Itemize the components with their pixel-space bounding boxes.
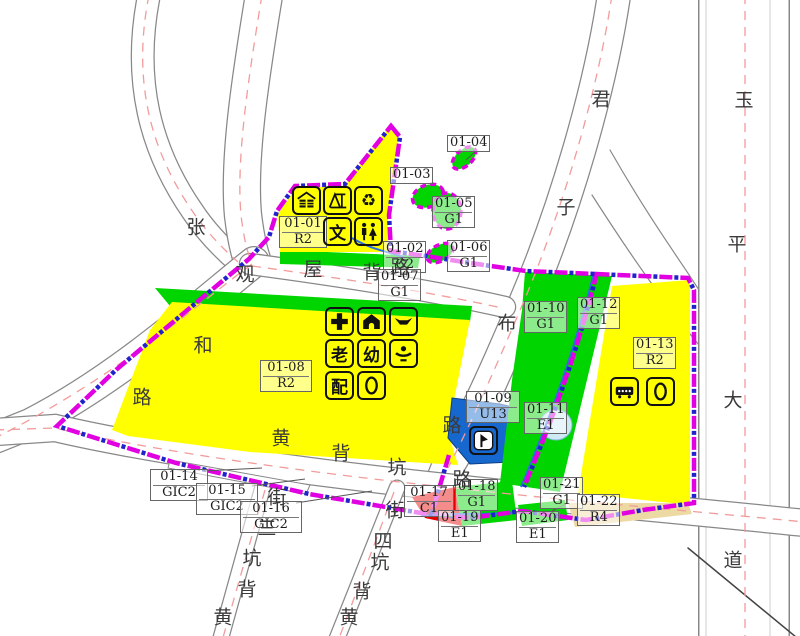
postal-icon [646,377,675,406]
parcel-code: 01-04 [450,136,487,151]
road-name-char-wu-bei-road: 屋 [303,255,322,282]
road-name-char-huang-bei-keng-3rd-street: 三 [257,514,276,541]
parcel-use-code: E1 [519,527,556,543]
road-name-char-huang-bei-keng-3rd-street: 街 [267,483,286,510]
road-name-char-huang-bei-keng-3rd-street: 坑 [242,544,261,571]
road-name-char-yu-ping-avenue: 平 [727,230,746,257]
road-name-char-wu-bei-road: 背 [362,258,381,285]
parcel-label-01-13: 01-13R2 [633,337,676,369]
substation-icon [469,426,498,455]
parcel-code: 01-13 [636,338,673,353]
road-name-char-huang-bei-keng-road: 黄 [271,424,290,451]
rehab-icon [389,339,418,368]
road-name-char-jun-zi-bu-road: 子 [556,193,575,220]
parcel-code: 01-19 [441,511,478,526]
parcel-use-code: G1 [543,493,580,509]
parcel-use-code: E1 [527,418,564,434]
road-name-char-yu-ping-avenue: 道 [723,546,742,573]
parcel-use-code: G1 [381,285,418,301]
road-name-char-huang-bei-keng-4th-street: 背 [352,577,371,604]
road-name-char-huang-bei-keng-road: 背 [331,439,350,466]
elderly-care-icon: 老 [325,339,354,368]
parcel-label-01-12: 01-12G1 [577,297,620,329]
parcel-label-01-22: 01-22R4 [577,494,620,526]
parcel-code: 01-22 [580,495,617,510]
structure-icon [323,186,352,215]
parcel-use-code: E1 [441,526,478,542]
parcel-label-01-11: 01-11E1 [524,402,567,434]
road-name-char-yu-ping-avenue: 大 [723,386,742,413]
road-name-char-huang-bei-keng-road: 路 [452,465,471,492]
recycle-icon: ♻ [354,186,383,215]
road-name-char-jun-zi-bu-road: 君 [591,85,610,112]
culture-icon: 文 [323,217,352,246]
parcel-use-code: U13 [469,407,517,423]
parcel-label-01-03: 01-03 [390,167,433,184]
parcel-code: 01-20 [519,512,556,527]
parcel-use-code: G1 [580,313,617,329]
parcel-use-code: G1 [458,495,495,511]
road-name-char-huang-bei-keng-4th-street: 黄 [339,603,358,630]
kindergarten-icon: 幼 [357,339,386,368]
bus-stop-icon [610,377,639,406]
parcel-use-code: R2 [282,232,324,248]
road-name-char-jun-zi-bu-road: 布 [497,309,516,336]
parcel-code: 01-11 [527,403,564,418]
parcel-code: 01-03 [393,168,430,183]
parcel-label-01-08: 01-08R2 [260,360,312,392]
clinic-icon [325,307,354,336]
parcel-code: 01-06 [450,241,487,256]
parcel-use-code: R4 [580,510,617,526]
parcel-code: 01-05 [435,197,472,212]
parcel-label-01-01: 01-01R2 [279,216,327,248]
community-house-icon [357,307,386,336]
parcel-label-01-19: 01-19E1 [438,510,481,542]
road-name-char-zhang-guan-he-road: 路 [132,383,151,410]
road-name-char-zhang-guan-he-road: 张 [186,213,205,240]
parcel-code: 01-12 [580,298,617,313]
parcel-use-code: G1 [435,212,472,228]
road-name-char-huang-bei-keng-3rd-street: 黄 [213,603,232,630]
market-icon [292,186,321,215]
toilet-icon [354,217,383,246]
parcel-label-01-09: 01-09U13 [466,391,520,423]
parcel-label-01-06: 01-06G1 [447,240,490,272]
postal-icon [357,371,386,400]
parcel-label-01-05: 01-05G1 [432,196,475,228]
parcel-code: 01-01 [282,217,324,232]
parcel-use-code: R2 [636,353,673,369]
culture-activity-icon [389,307,418,336]
road-name-char-huang-bei-keng-road: 坑 [387,453,406,480]
parcel-code: 01-15 [199,484,255,499]
planning-map: 01-01R201-02G201-0301-0401-05G101-06G101… [0,0,800,636]
parcel-use-code: G1 [450,256,487,272]
road-name-char-yu-ping-avenue: 玉 [734,86,753,113]
parcel-label-01-04: 01-04 [447,135,490,152]
road-name-char-huang-bei-keng-3rd-street: 背 [237,575,256,602]
road-name-char-huang-bei-keng-4th-street: 街 [385,496,404,523]
parcel-use-code: R2 [263,376,309,392]
parcel-label-01-10: 01-10G1 [524,301,567,333]
parcel-code: 01-09 [469,392,517,407]
road-name-char-huang-bei-keng-4th-street: 坑 [370,548,389,575]
power-distribution-icon: 配 [325,371,354,400]
road-name-char-jun-zi-bu-road: 路 [442,411,461,438]
road-name-char-wu-bei-road: 路 [390,253,409,280]
parcel-code: 01-10 [527,302,564,317]
road-name-char-zhang-guan-he-road: 观 [235,260,254,287]
parcel-label-01-20: 01-20E1 [516,511,559,543]
parcel-code: 01-17 [407,486,451,501]
road-name-char-zhang-guan-he-road: 和 [193,331,212,358]
parcel-use-code: G1 [527,317,564,333]
parcel-code: 01-21 [543,478,580,493]
parcel-code: 01-08 [263,361,309,376]
road-topleft-b [242,0,264,260]
